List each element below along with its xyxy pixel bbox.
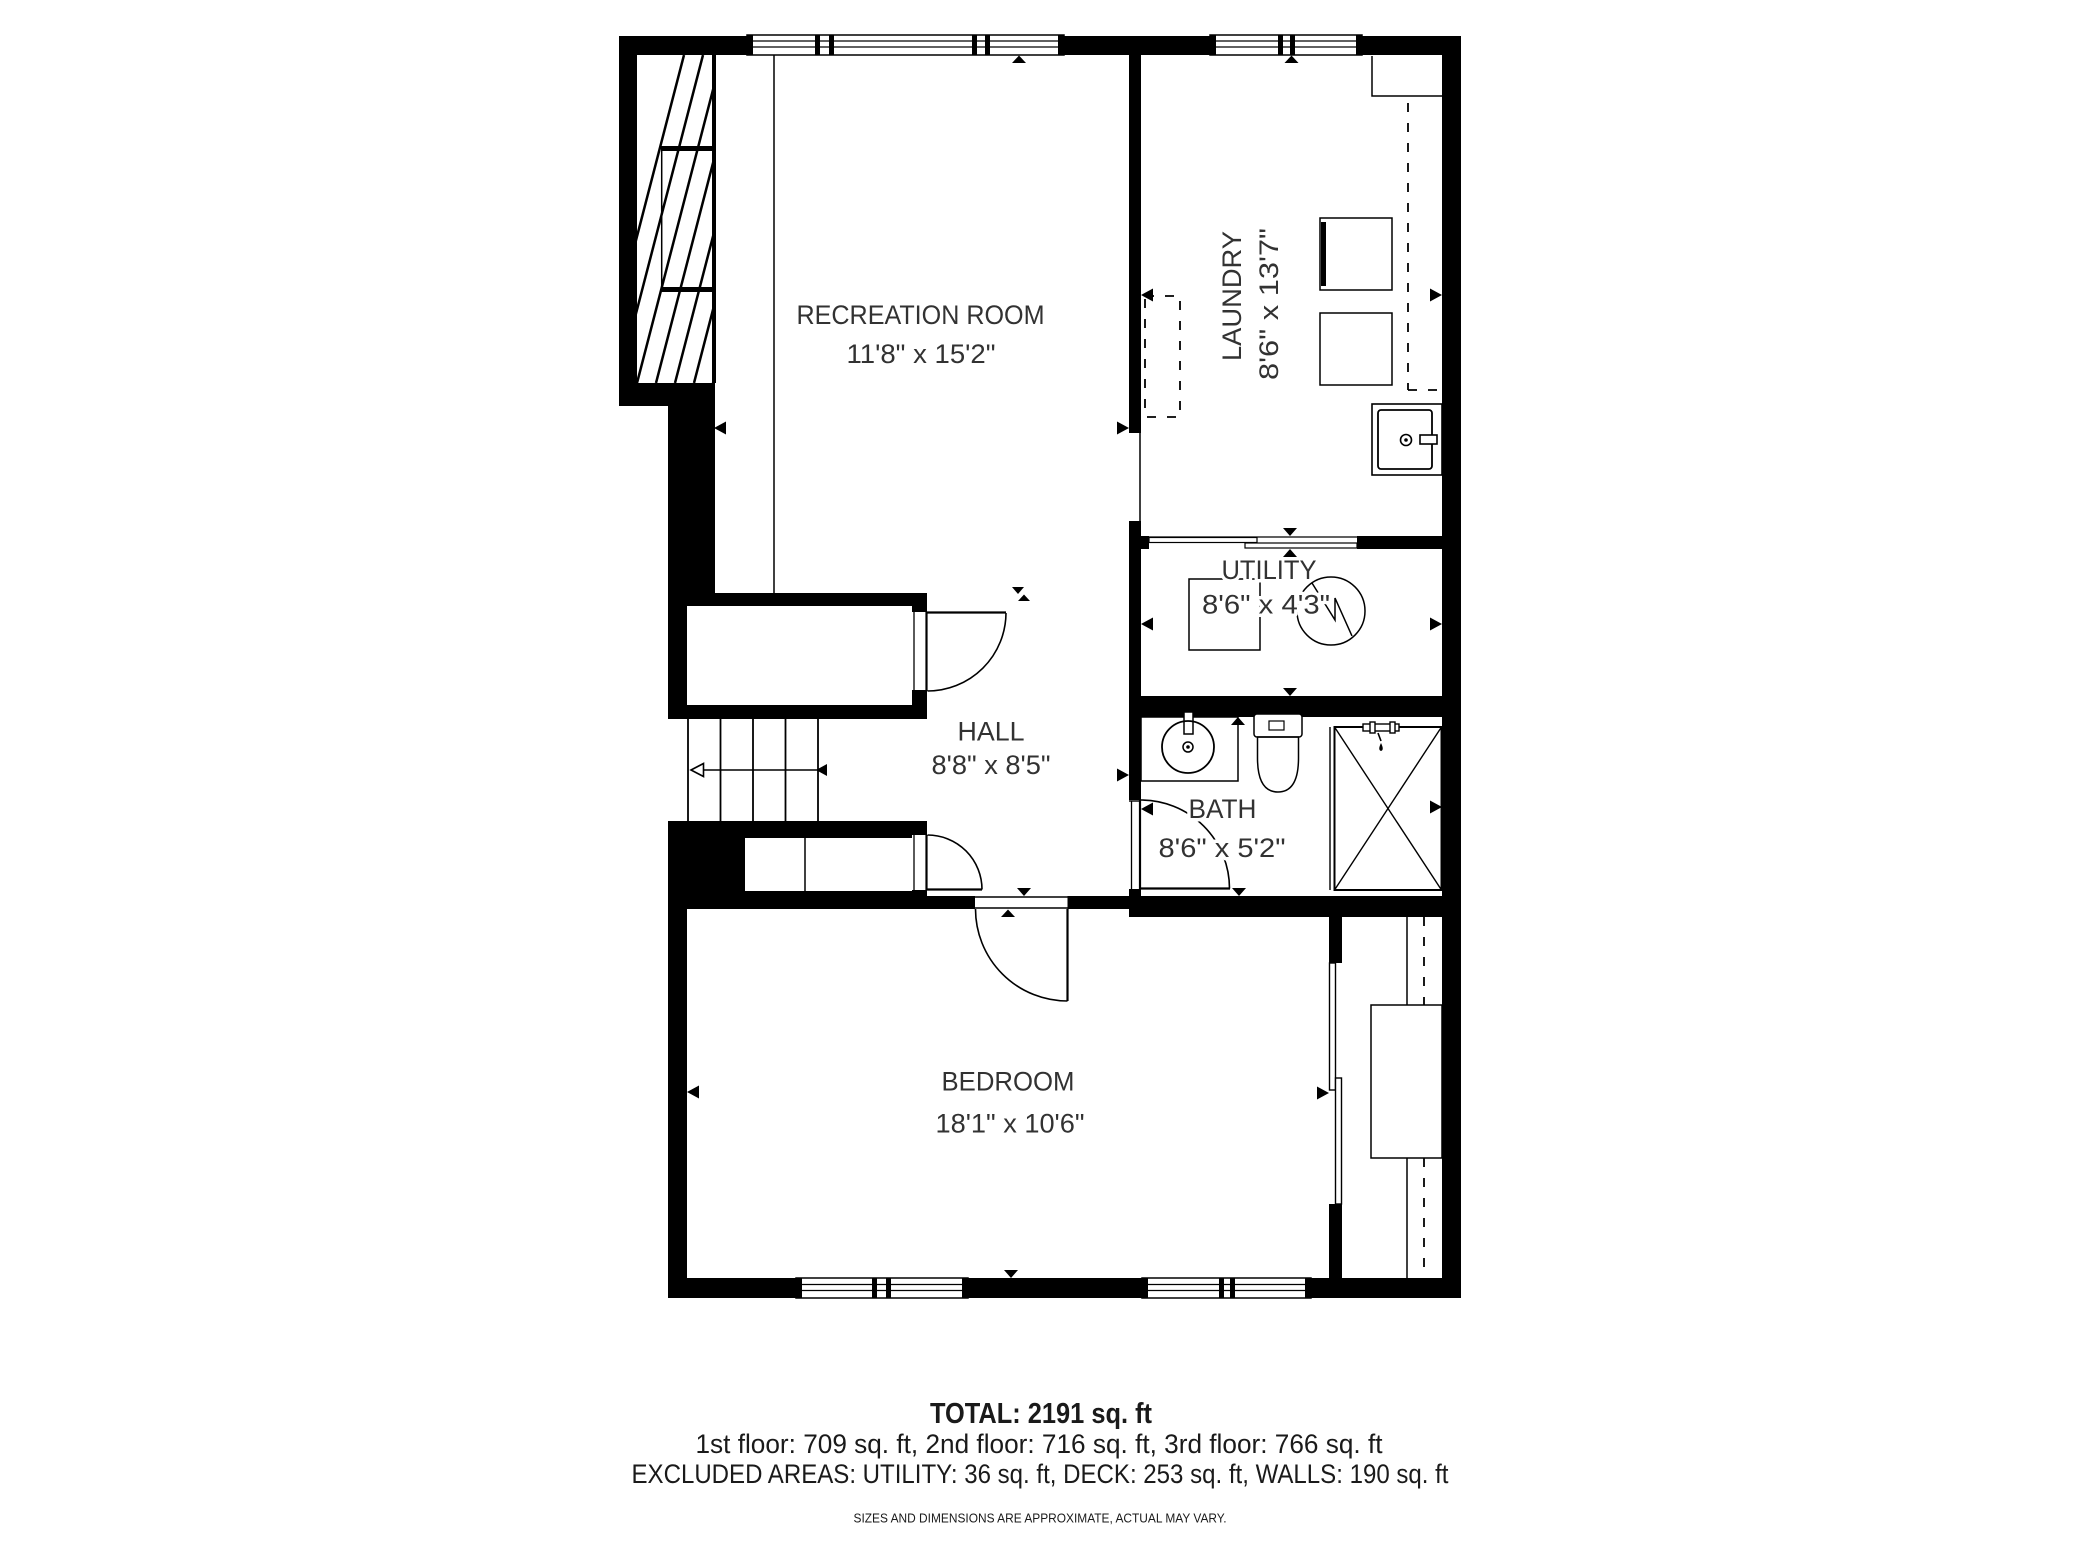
svg-text:8'6" x 4'3": 8'6" x 4'3" [1202, 590, 1330, 620]
svg-text:EXCLUDED AREAS: UTILITY: 36 sq: EXCLUDED AREAS: UTILITY: 36 sq. ft, DECK… [632, 1459, 1449, 1489]
svg-text:8'6" x 5'2": 8'6" x 5'2" [1159, 833, 1286, 863]
svg-text:LAUNDRY: LAUNDRY [1217, 231, 1247, 361]
svg-text:TOTAL: 2191 sq. ft: TOTAL: 2191 sq. ft [930, 1398, 1152, 1430]
svg-text:UTILITY: UTILITY [1222, 555, 1317, 585]
svg-text:SIZES AND DIMENSIONS ARE APPRO: SIZES AND DIMENSIONS ARE APPROXIMATE, AC… [854, 1511, 1227, 1526]
svg-text:HALL: HALL [958, 717, 1025, 747]
svg-text:RECREATION ROOM: RECREATION ROOM [797, 300, 1045, 330]
svg-text:1st floor: 709 sq. ft, 2nd flo: 1st floor: 709 sq. ft, 2nd floor: 716 sq… [696, 1429, 1383, 1459]
svg-text:18'1" x 10'6": 18'1" x 10'6" [936, 1109, 1085, 1139]
svg-text:BATH: BATH [1189, 794, 1257, 824]
svg-text:11'8" x 15'2": 11'8" x 15'2" [847, 339, 996, 369]
svg-text:8'6" x 13'7": 8'6" x 13'7" [1254, 228, 1284, 380]
svg-text:8'8" x 8'5": 8'8" x 8'5" [932, 750, 1051, 780]
svg-text:BEDROOM: BEDROOM [942, 1067, 1075, 1097]
